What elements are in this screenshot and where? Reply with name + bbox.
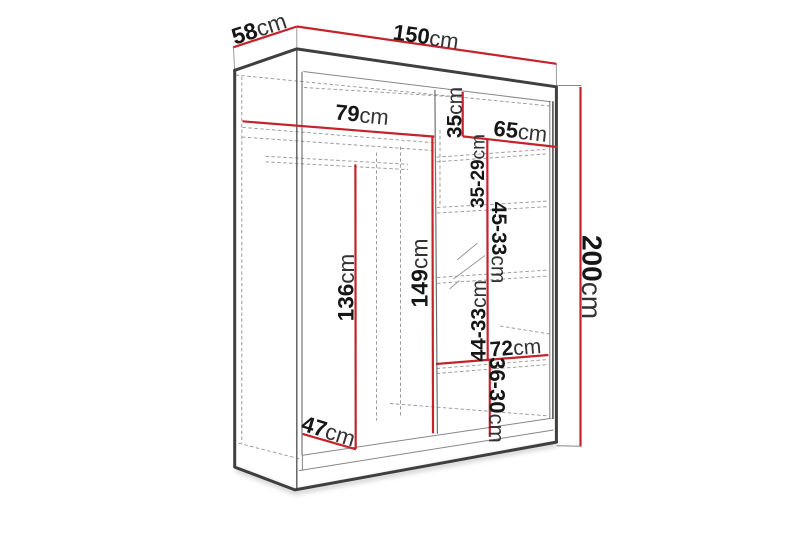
svg-text:136cm: 136cm bbox=[333, 254, 358, 322]
svg-text:200cm: 200cm bbox=[577, 235, 608, 319]
svg-text:79cm: 79cm bbox=[334, 99, 390, 129]
svg-text:36-30cm: 36-30cm bbox=[485, 357, 510, 443]
svg-text:149cm: 149cm bbox=[407, 238, 433, 307]
svg-text:45-33cm: 45-33cm bbox=[487, 202, 510, 284]
svg-text:35-29cm: 35-29cm bbox=[468, 134, 489, 208]
svg-text:44-33cm: 44-33cm bbox=[468, 280, 491, 362]
svg-text:35cm: 35cm bbox=[443, 87, 466, 138]
